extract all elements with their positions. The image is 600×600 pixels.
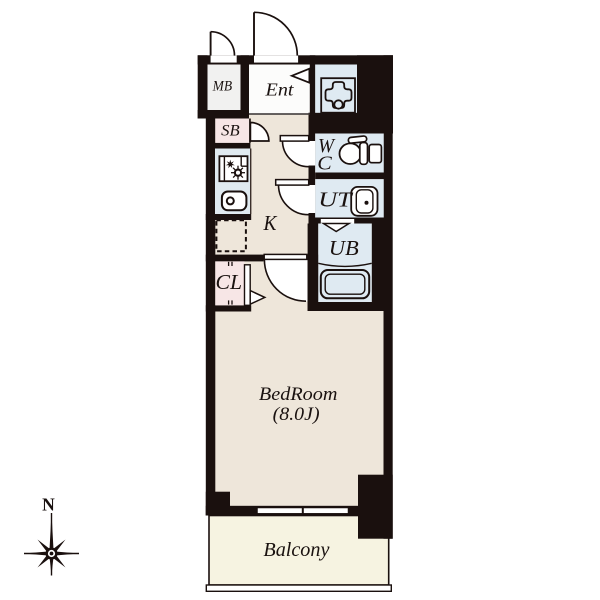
svg-text:C: C [317, 153, 332, 175]
svg-text:UB: UB [329, 238, 359, 260]
svg-text:CL: CL [216, 271, 243, 294]
svg-text:N: N [42, 495, 55, 515]
svg-text:Balcony: Balcony [263, 539, 329, 561]
svg-text:MB: MB [212, 78, 233, 94]
svg-text:K: K [263, 211, 278, 235]
svg-text:SB: SB [221, 122, 240, 139]
svg-text:UT: UT [318, 188, 354, 212]
svg-text:(8.0J): (8.0J) [273, 404, 320, 425]
svg-text:Ent: Ent [264, 80, 294, 100]
svg-text:BedRoom: BedRoom [259, 384, 338, 405]
